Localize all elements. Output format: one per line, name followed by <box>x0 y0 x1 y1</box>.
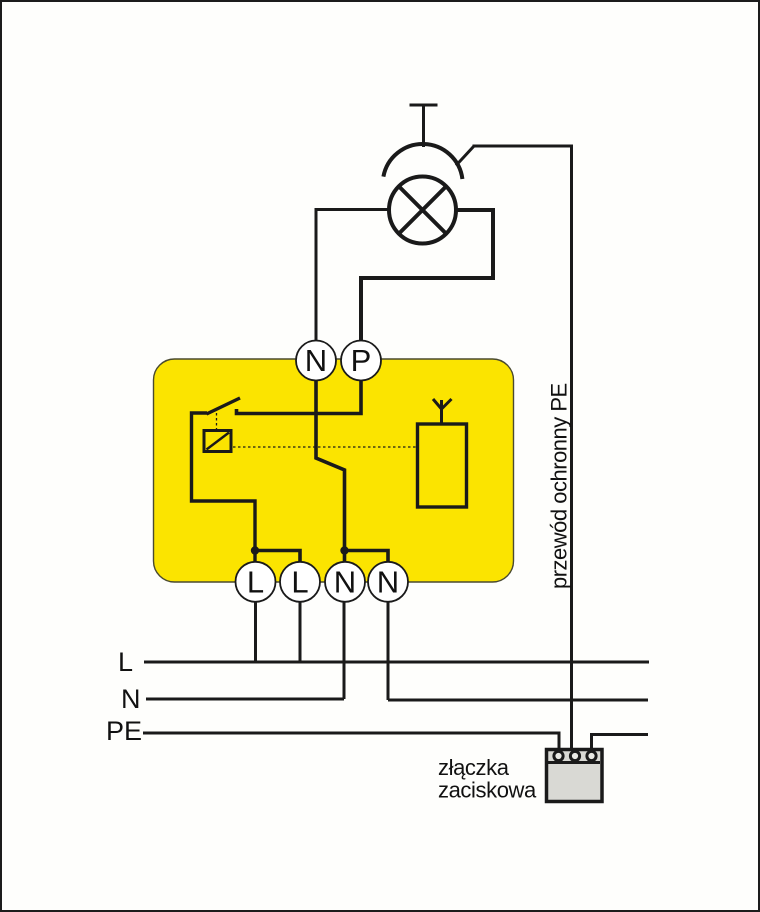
svg-text:P: P <box>351 343 372 378</box>
svg-text:przewód ochronny PE: przewód ochronny PE <box>547 383 572 589</box>
svg-text:N: N <box>334 565 356 600</box>
svg-text:zaciskowa: zaciskowa <box>438 778 537 803</box>
svg-text:L: L <box>291 565 308 600</box>
svg-text:PE: PE <box>106 716 142 746</box>
svg-text:N: N <box>121 684 141 714</box>
svg-text:N: N <box>305 343 327 378</box>
svg-text:L: L <box>247 565 264 600</box>
svg-text:złączka: złączka <box>438 755 510 780</box>
svg-text:L: L <box>118 647 133 677</box>
svg-text:N: N <box>377 565 399 600</box>
